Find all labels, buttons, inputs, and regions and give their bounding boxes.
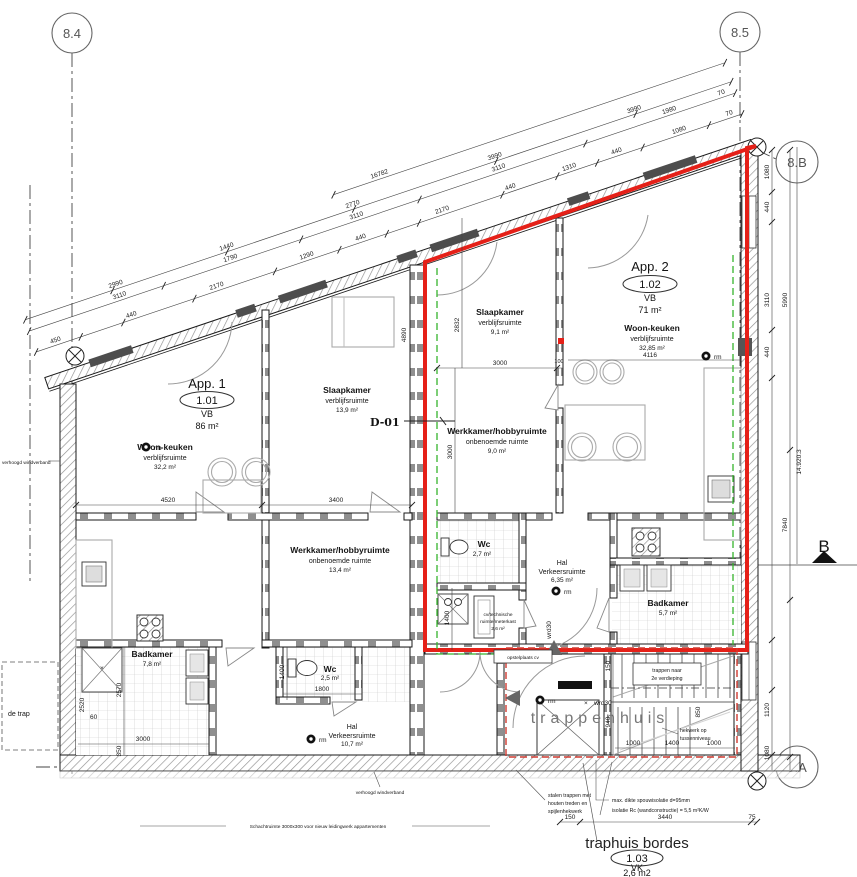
dim: 14.920.3 <box>796 449 803 475</box>
room-name: Slaapkamer <box>323 385 371 395</box>
cv-line2: ruimte/meterkast <box>480 619 516 625</box>
cv-line1: cv/technische <box>483 612 512 618</box>
dim: 3110 <box>764 293 771 307</box>
note-line: houten treden en <box>548 801 587 807</box>
wall-app1-badkamer <box>209 647 216 755</box>
room-name: Hal <box>347 724 358 731</box>
dim: 4116 <box>643 352 657 359</box>
room-area: 9,1 m² <box>491 329 510 336</box>
wall-app1-wc <box>276 697 330 704</box>
room-type: verblijfsruimte <box>630 336 673 343</box>
dim: 2170 <box>434 205 450 216</box>
dim: 3110 <box>112 290 128 301</box>
party-wall <box>410 265 424 755</box>
wall-app1-mid <box>228 513 368 520</box>
dim: 3400 <box>329 497 344 504</box>
app1-counter <box>76 540 112 648</box>
app1-area: 86 m² <box>195 421 218 431</box>
room-name: Hal <box>557 560 568 567</box>
top-dimension-labels: 450 440 2170 1290 440 2170 440 1310 440 … <box>32 58 734 346</box>
room-area: 2,5 m² <box>321 675 340 682</box>
room-name: Badkamer <box>131 649 173 659</box>
dim: 1000 <box>626 740 641 747</box>
dim: 1400 <box>279 664 286 679</box>
dim: 850 <box>695 706 702 717</box>
red-marker-dot <box>558 338 564 344</box>
room-area: 32,85 m² <box>639 345 665 352</box>
dim: 3990 <box>626 104 642 115</box>
room-area: 13,4 m² <box>329 567 352 574</box>
app1-shower-floor <box>362 647 410 702</box>
door-arc-app2-hal <box>535 588 597 650</box>
floorplan-sheet: 8.4 8.5 8.B 8.A B 450 <box>0 0 857 877</box>
room-area: 7,8 m² <box>143 661 162 668</box>
room-area: 32,2 m² <box>154 464 177 471</box>
dim: 3440 <box>658 814 673 821</box>
dim: 1980 <box>661 105 677 116</box>
dim: 3110 <box>491 162 507 173</box>
dim: 2570 <box>116 682 123 697</box>
room-type: Verkeersruimte <box>538 569 585 576</box>
de-trap-label: de trap <box>8 711 30 718</box>
app1-name: App. 1 <box>188 376 226 391</box>
rm-label: rm <box>154 445 162 452</box>
dim: 60 <box>90 714 98 721</box>
app2-name: App. 2 <box>631 259 669 274</box>
bordes-title-block: traphuis bordes 1.03 VK 2,6 m2 <box>583 763 689 877</box>
shaft-icon <box>537 700 599 755</box>
grid-label-8-4: 8.4 <box>63 26 81 41</box>
dim: 5990 <box>782 292 789 307</box>
room-area: 5,7 m² <box>659 610 678 617</box>
app1-level: VB <box>201 409 213 419</box>
stairwell: opstelplaats cv trappen naar 2e verdiepi… <box>494 640 737 757</box>
wall-bordes <box>497 654 504 755</box>
dim: 1000 <box>707 740 722 747</box>
dim: 3000 <box>447 444 454 459</box>
dim: 940 <box>605 716 612 727</box>
app2-number: 1.02 <box>639 279 660 291</box>
top-dimension-lines <box>15 59 746 356</box>
dim: 4890 <box>401 327 408 342</box>
dim: 2990 <box>108 279 124 290</box>
dim: 100 <box>554 359 563 365</box>
dim: 150 <box>565 814 576 821</box>
wall-app2-hal <box>610 513 617 598</box>
dim: 2170 <box>209 281 225 292</box>
windverband-note-left: verhoogd windverband <box>2 460 51 466</box>
wrd30-label: wrd30 <box>593 700 612 707</box>
wall-app1-lower <box>262 640 412 647</box>
dim: 1400 <box>665 740 680 747</box>
windverband-note-bottom: verhoogd windverband <box>356 790 405 796</box>
app1-wc-toilet-icon <box>288 659 317 677</box>
grid-label-8-5: 8.5 <box>731 25 749 40</box>
room-name: Werkkamer/hobbyruimte <box>447 426 547 436</box>
floorplan-drawing: 8.4 8.5 8.B 8.A B 450 <box>0 0 857 877</box>
app2-area: 71 m² <box>638 305 661 315</box>
wall-app2-mid <box>437 513 552 520</box>
dim-total: 16782 <box>370 168 390 181</box>
rm-marker: rm <box>552 587 572 597</box>
wall-app1-wc <box>355 647 362 700</box>
rm-label: rm <box>564 589 572 596</box>
dim: 7840 <box>782 517 789 532</box>
note-line: max. dikte spouwisolatie d=95mm <box>612 798 690 804</box>
dim: 3110 <box>349 210 365 221</box>
app1-stove-icon <box>137 615 163 641</box>
room-name: Wc <box>478 539 491 549</box>
rm-label: rm <box>548 698 556 705</box>
cv-area: 2,6 m² <box>491 626 505 632</box>
room-area: 13,9 m² <box>336 407 359 414</box>
dim: 2832 <box>454 317 461 332</box>
room-area: 9,0 m² <box>488 448 507 455</box>
hekwerk-line1: hekwerk op <box>680 728 707 734</box>
trappenhuis-label: trappenhuis <box>531 710 670 727</box>
dim: 1800 <box>315 686 330 693</box>
note-line: isolatie Rc (wandconstructie) = 5,5 m²K/… <box>612 808 709 814</box>
app1-hal-label: Hal Verkeersruimte 10,7 m² <box>328 724 375 748</box>
dim: 440 <box>610 146 623 156</box>
wall-app2-slaapkamer <box>556 408 563 513</box>
app2-washer-icon <box>438 594 468 624</box>
bordes-area: 2,6 m2 <box>623 868 651 877</box>
dim: 70 <box>725 109 734 118</box>
bordes-name: traphuis bordes <box>585 835 688 852</box>
dim: 1400 <box>444 610 451 625</box>
dim: 2770 <box>345 199 361 210</box>
room-area: 6,35 m² <box>551 577 574 584</box>
room-name: Wc <box>324 664 337 674</box>
wall-app2-badkamer <box>610 558 741 565</box>
app2-woonkeuken-label: Woon-keuken verblijfsruimte 32,85 m² <box>624 323 680 352</box>
opstelplaats-label: opstelplaats cv <box>507 655 539 661</box>
room-name: Badkamer <box>647 598 689 608</box>
dim: 1290 <box>299 250 315 261</box>
d01-label: D-01 <box>370 416 400 429</box>
app1-chairs <box>208 458 270 486</box>
dim: 1310 <box>561 162 577 173</box>
app2-werkkamer-label: Werkkamer/hobbyruimte onbenoemde ruimte … <box>447 426 547 455</box>
dim: 3000 <box>493 360 508 367</box>
dim: 1120 <box>764 703 771 717</box>
app2-title-block: App. 2 1.02 VB 71 m² <box>623 259 677 315</box>
dim: 150 <box>605 660 612 671</box>
app2-wc-toilet-icon <box>441 538 468 556</box>
bottom-wall-outer-leaf <box>60 771 800 778</box>
dim: 1080 <box>764 164 771 179</box>
rm-marker: rm <box>307 735 327 745</box>
dim: 1080 <box>764 745 771 760</box>
wall-app1-mid <box>404 513 412 520</box>
dim: 440 <box>764 201 771 212</box>
wall-app1-mid <box>76 513 196 520</box>
app2-chairs <box>568 360 641 461</box>
app2-stove-icon <box>632 528 660 556</box>
dim: 1440 <box>219 241 235 252</box>
dim: 3990 <box>487 151 503 162</box>
room-area: 10,7 m² <box>341 741 364 748</box>
trappen-naar-line1: trappen naar <box>652 668 682 674</box>
arrow-left-icon <box>505 690 520 706</box>
trappen-naar-line2: 2e verdieping <box>651 676 682 682</box>
dim: 450 <box>49 335 62 345</box>
app2-level: VB <box>644 293 656 303</box>
note-line: stalen trappen met <box>548 793 592 799</box>
room-type: Verkeersruimte <box>328 733 375 740</box>
dim: 350 <box>116 745 123 756</box>
dim: 440 <box>125 310 138 320</box>
dim: 4520 <box>161 497 176 504</box>
dim: 75 <box>748 814 756 821</box>
rm-label: rm <box>319 737 327 744</box>
dim: 440 <box>764 346 771 357</box>
dim: 70 <box>717 88 726 97</box>
de-trap-stoop: de trap <box>2 662 58 750</box>
room-type: verblijfsruimte <box>325 398 368 405</box>
app2-table <box>565 405 645 460</box>
note-line: spijlenhekwerk <box>548 809 582 815</box>
room-type: onbenoemde ruimte <box>309 558 371 565</box>
app1-number: 1.01 <box>196 395 217 407</box>
door-arc-double-left <box>440 652 480 692</box>
left-wall <box>60 384 76 757</box>
rm-marker: rm <box>702 352 722 362</box>
room-name: Werkkamer/hobbyruimte <box>290 545 390 555</box>
section-marker-b-arrow-icon <box>812 551 837 563</box>
dim: 2520 <box>79 697 86 712</box>
app1-slaapkamer-label: Slaapkamer verblijfsruimte 13,9 m² <box>323 385 371 414</box>
room-type: onbenoemde ruimte <box>466 439 528 446</box>
x-mark: × <box>584 700 588 707</box>
wrd30-label-vertical: wrd30 <box>546 621 553 640</box>
wall-app2-cv <box>437 583 526 590</box>
room-area: 2,7 m² <box>473 551 492 558</box>
dim: 1080 <box>671 125 687 136</box>
rm-label: rm <box>714 354 722 361</box>
room-type: verblijfsruimte <box>478 320 521 327</box>
schacht-note: Schachtruimte 3000x300 voor nieuw leidin… <box>250 824 387 830</box>
app2-hal-label: Hal Verkeersruimte 6,35 m² <box>538 560 585 584</box>
app2-slaapkamer-label: Slaapkamer verblijfsruimte 9,1 m² <box>476 307 524 336</box>
bed <box>332 297 394 347</box>
dim: 1790 <box>223 253 239 264</box>
room-type: verblijfsruimte <box>143 455 186 462</box>
dim: 440 <box>504 182 517 192</box>
room-name: Slaapkamer <box>476 307 524 317</box>
app1-title-block: App. 1 1.01 VB 86 m² <box>180 376 234 431</box>
dim: 440 <box>354 233 367 243</box>
x-mark: × <box>100 665 104 672</box>
dim: 3000 <box>136 736 151 743</box>
room-name: Woon-keuken <box>624 323 680 333</box>
app1-werkkamer-label: Werkkamer/hobbyruimte onbenoemde ruimte … <box>290 545 390 574</box>
wall-stub <box>558 681 592 689</box>
